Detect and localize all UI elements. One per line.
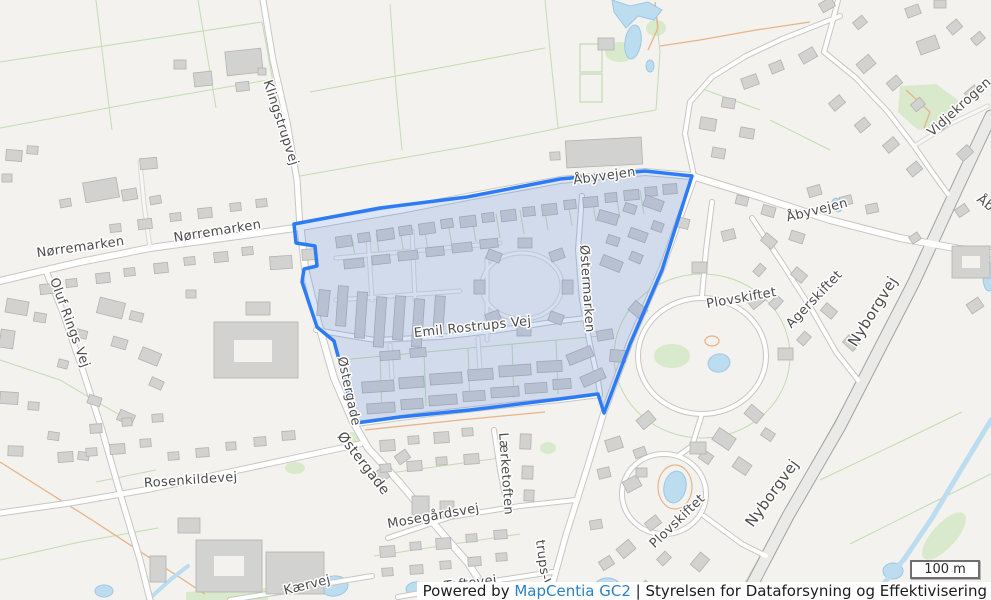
building [380, 439, 396, 451]
building [236, 81, 250, 91]
building [256, 198, 268, 207]
mapcentia-link[interactable]: MapCentia GC2 [514, 582, 631, 600]
building [8, 446, 23, 457]
building [149, 195, 161, 205]
building [636, 468, 647, 477]
building [550, 152, 560, 161]
building [380, 545, 396, 557]
building [934, 0, 946, 8]
attribution-suffix: | Styrelsen for Dataforsyning og Effekti… [631, 582, 987, 600]
building [186, 290, 196, 298]
building [196, 448, 210, 458]
building [170, 212, 182, 221]
building [86, 448, 98, 457]
building [110, 223, 122, 232]
building [27, 146, 39, 155]
building [565, 137, 642, 168]
building [496, 553, 508, 562]
building [408, 436, 420, 445]
building [524, 490, 534, 501]
building [154, 262, 169, 273]
building [242, 246, 254, 255]
building [150, 556, 166, 582]
building [434, 431, 450, 443]
building [110, 443, 126, 454]
building [520, 434, 532, 449]
attribution-bar: Powered by MapCentia GC2 | Styrelsen for… [417, 582, 991, 600]
building [282, 431, 296, 441]
map-canvas[interactable]: KlingstrupvejNørremarkenNørremarkenÅbyve… [0, 0, 991, 600]
building [407, 460, 423, 471]
building [254, 437, 267, 447]
building [138, 218, 153, 229]
building [2, 174, 12, 182]
attribution-prefix: Powered by [423, 582, 515, 600]
building [589, 519, 602, 530]
building [140, 157, 158, 169]
building [466, 534, 478, 543]
building [699, 117, 717, 132]
building [464, 453, 480, 464]
building [28, 402, 40, 411]
building [225, 48, 263, 76]
building [214, 251, 229, 262]
building [168, 452, 180, 461]
building [711, 147, 726, 159]
building [462, 428, 474, 437]
building [193, 71, 212, 87]
building [140, 439, 152, 448]
building [721, 97, 736, 109]
building [440, 561, 452, 570]
building [6, 149, 23, 161]
building [184, 256, 196, 265]
building [96, 272, 111, 283]
building [47, 431, 59, 440]
map-viewport[interactable]: KlingstrupvejNørremarkenNørremarkenÅbyve… [0, 0, 991, 600]
building [778, 348, 793, 360]
building [522, 466, 533, 479]
building [380, 464, 392, 473]
scale-bar-label: 100 m [924, 562, 966, 577]
building [598, 38, 614, 50]
building [692, 262, 707, 273]
building [152, 414, 164, 423]
building [198, 207, 213, 218]
building [258, 68, 266, 75]
building [436, 537, 452, 549]
building [174, 60, 186, 69]
building [739, 127, 755, 139]
building [410, 542, 422, 551]
building [410, 565, 424, 575]
building [0, 391, 18, 404]
building [178, 518, 200, 533]
building [124, 267, 136, 276]
building [121, 188, 138, 201]
building [494, 530, 508, 540]
building [58, 451, 74, 462]
building [382, 568, 394, 577]
building [468, 557, 482, 567]
building [226, 442, 237, 451]
scale-bar: 100 m [910, 560, 980, 579]
building [122, 418, 133, 427]
building [690, 442, 706, 454]
building [66, 278, 78, 287]
building [33, 312, 46, 323]
building [865, 203, 879, 214]
building [230, 202, 242, 211]
building [59, 198, 71, 208]
building [90, 424, 103, 434]
building [0, 329, 15, 349]
building [246, 302, 270, 315]
building [270, 255, 293, 270]
building [436, 457, 448, 466]
